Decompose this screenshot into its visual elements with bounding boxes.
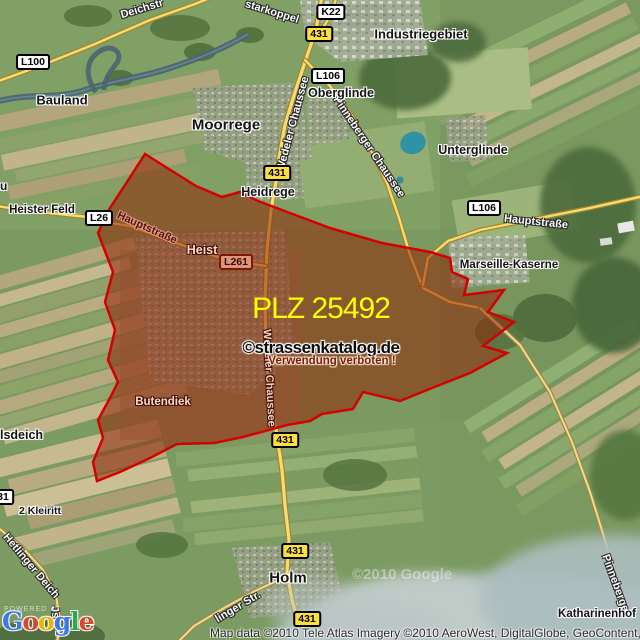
google-logo-letter: e xyxy=(79,607,94,636)
street-label: Hauptstraße xyxy=(503,213,568,232)
place-label: Bauland xyxy=(36,93,87,108)
road-badge: L26 xyxy=(85,210,113,226)
road-badge: K22 xyxy=(316,4,345,20)
plz-watermark: PLZ 25492 xyxy=(252,292,390,326)
place-label: Heist xyxy=(187,243,218,257)
street-label: Wedeler Chaussee xyxy=(275,75,312,172)
road-badge: 431 xyxy=(281,543,309,559)
google-logo-letter: o xyxy=(38,607,54,636)
place-label: Oberglinde xyxy=(308,86,374,100)
road-badge: L100 xyxy=(16,54,50,70)
map-attribution: Map data ©2010 Tele Atlas Imagery ©2010 … xyxy=(210,626,640,640)
road-badge: 431 xyxy=(305,26,333,42)
google-logo-letter: l xyxy=(70,607,79,636)
road-badge: 431 xyxy=(293,611,321,627)
map-viewport[interactable]: DeichstrstarkoppelWedeler ChausseePinneb… xyxy=(0,0,640,640)
place-label: Unterglinde xyxy=(438,143,507,157)
place-label: Katharinenhof xyxy=(558,608,636,620)
road-badge: L106 xyxy=(311,68,345,84)
place-label: Heister Feld xyxy=(9,204,75,216)
google-logo[interactable]: Google xyxy=(2,609,94,635)
street-label: linger Str. xyxy=(213,589,263,625)
street-label: Deichstr xyxy=(119,0,165,21)
place-label: Holm xyxy=(269,570,307,587)
place-label: Moorrege xyxy=(192,117,260,134)
road-badge: 431 xyxy=(263,165,291,181)
street-label: Hauptstraße xyxy=(115,209,179,246)
road-badge: 431 xyxy=(271,432,299,448)
place-label: lsdeich xyxy=(0,428,43,442)
place-label: 2 Kleiritt xyxy=(19,505,61,517)
notice-watermark: Verwendung verboten ! xyxy=(268,355,395,367)
road-badge: 31 xyxy=(0,489,14,505)
street-label: starkoppel xyxy=(244,0,301,26)
street-label: Pinneberger Chaussee xyxy=(331,94,408,200)
google-logo-letter: g xyxy=(54,607,70,636)
imagery-ghost-watermark: ©2010 Google xyxy=(352,566,452,583)
street-label: Hetlinger Deich xyxy=(0,531,61,601)
place-label: Industriegebiet xyxy=(374,27,467,42)
google-logo-letter: o xyxy=(22,607,38,636)
road-badge: L106 xyxy=(467,200,501,216)
road-badge: L261 xyxy=(219,254,253,270)
place-label: Marseille-Kaserne xyxy=(460,259,558,271)
place-label: Heidrege xyxy=(241,185,295,199)
google-logo-letter: G xyxy=(2,607,22,636)
place-label: u xyxy=(0,179,7,193)
place-label: Butendiek xyxy=(135,396,191,408)
